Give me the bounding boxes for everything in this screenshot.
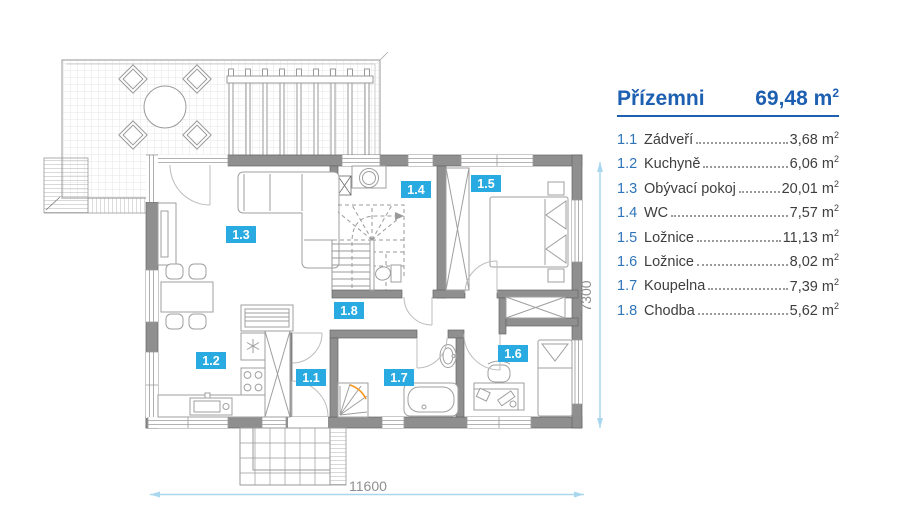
legend-dotted-leader [739,191,780,193]
window-top-mid [408,155,433,166]
room-label-1-4: 1.4 [401,181,431,198]
window-bottom-bedroom2 [467,417,531,428]
sofa [238,172,339,268]
room-label-1-3: 1.3 [226,226,256,243]
legend-room-number: 1.7 [617,277,644,297]
room-label-1-8: 1.8 [334,302,364,319]
wardrobe-bedroom2 [506,297,565,318]
legend-row: 1.7 Koupelna 7,39 m2 [617,273,839,297]
legend-room-name: Zádveří [644,131,693,151]
legend-row: 1.5 Ložnice 11,13 m2 [617,224,839,248]
legend-dotted-leader [698,313,788,315]
window-left-corner-glass [146,155,158,202]
svg-text:11600: 11600 [349,478,387,494]
desk [474,383,524,410]
tv-unit [158,203,176,265]
svg-text:1.3: 1.3 [232,228,249,242]
legend-room-area: 7,57 m2 [790,199,839,223]
legend-total-area: 69,48 m2 [755,86,839,111]
svg-text:7300: 7300 [578,280,594,311]
room-label-1-6: 1.6 [498,345,528,362]
legend-row: 1.8 Chodba 5,62 m2 [617,297,839,321]
legend-room-number: 1.1 [617,131,644,151]
svg-text:1.8: 1.8 [340,304,357,318]
corner-shower [338,383,368,417]
tall-cabinet [265,331,290,417]
legend-panel: Přízemni 69,48 m2 1.1 Zádveří 3,68 m2 1.… [617,86,839,321]
dimension-bottom: 11600 [150,478,584,498]
room-label-1-1: 1.1 [296,369,326,386]
legend-room-number: 1.5 [617,229,644,249]
legend-items: 1.1 Zádveří 3,68 m2 1.2 Kuchyně 6,06 m2 … [617,126,839,321]
window-bottom-bath [382,417,404,428]
pergola [227,69,373,156]
legend-row: 1.6 Ložnice 8,02 m2 [617,248,839,272]
legend-room-area: 7,39 m2 [790,273,839,297]
room-label-1-7: 1.7 [384,369,414,386]
chimney-duct [338,176,351,195]
legend-room-number: 1.4 [617,204,644,224]
svg-text:1.5: 1.5 [477,177,494,191]
legend-title: Přízemni [617,87,705,111]
entry-porch [240,428,330,485]
single-bed [538,340,572,416]
window-left-kitchen [146,352,158,418]
legend-room-number: 1.8 [617,302,644,322]
window-right-bedroom1 [572,200,582,262]
legend-dotted-leader [696,142,787,144]
legend-room-area: 20,01 m2 [782,175,839,199]
desk-chair [488,361,510,382]
svg-text:1.6: 1.6 [504,347,521,361]
window-left-dining [146,270,158,322]
room-label-1-5: 1.5 [471,175,501,192]
legend-row: 1.3 Obývací pokoj 20,01 m2 [617,175,839,199]
svg-text:1.2: 1.2 [202,354,219,368]
legend-room-name: Chodba [644,302,695,322]
legend-room-name: Kuchyně [644,155,700,175]
dining-table [161,264,213,329]
legend-dotted-leader [708,288,787,290]
pergola-slats [229,83,369,156]
svg-text:1.7: 1.7 [390,371,407,385]
legend-room-name: Ložnice [644,229,694,249]
pergola-posts [229,69,370,76]
window-bottom-sidelight [262,417,286,428]
legend-row: 1.2 Kuchyně 6,06 m2 [617,150,839,174]
svg-text:1.1: 1.1 [302,371,319,385]
legend-dotted-leader [697,264,788,266]
svg-text:1.4: 1.4 [407,183,424,197]
legend-room-name: WC [644,204,668,224]
double-bed [490,182,568,282]
window-bottom-kitchen [148,417,228,428]
wardrobe-hall [446,168,469,290]
legend-room-number: 1.6 [617,253,644,273]
legend-room-number: 1.3 [617,180,644,200]
room-label-1-2: 1.2 [196,352,226,369]
entrance-door-opening [288,417,328,428]
legend-room-name: Obývací pokoj [644,180,736,200]
legend-room-area: 11,13 m2 [783,224,839,248]
window-top-bedroom [461,155,533,166]
legend-room-number: 1.2 [617,155,644,175]
legend-room-area: 5,62 m2 [790,297,839,321]
legend-room-name: Koupelna [644,277,705,297]
legend-room-area: 3,68 m2 [790,126,839,150]
window-top-terrace-glass [156,155,228,166]
entry-steps [330,428,346,485]
window-top-wc [342,155,380,166]
bathtub [404,383,458,416]
window-right-bedroom2 [572,340,582,404]
floor-plan-page: 1.3 1.4 1.5 1.2 1.8 1.1 1.7 1.6 [0,0,900,506]
legend-room-name: Ložnice [644,253,694,273]
toilet [374,265,401,282]
legend-room-area: 6,06 m2 [790,150,839,174]
legend-dotted-leader [703,166,787,168]
wc-washbasin [352,166,386,188]
legend-dotted-leader [697,240,781,242]
bath-washbasin [440,345,456,368]
legend-room-area: 8,02 m2 [790,248,839,272]
legend-title-row: Přízemni 69,48 m2 [617,86,839,117]
legend-dotted-leader [671,215,787,217]
legend-row: 1.4 WC 7,57 m2 [617,199,839,223]
legend-row: 1.1 Zádveří 3,68 m2 [617,126,839,150]
